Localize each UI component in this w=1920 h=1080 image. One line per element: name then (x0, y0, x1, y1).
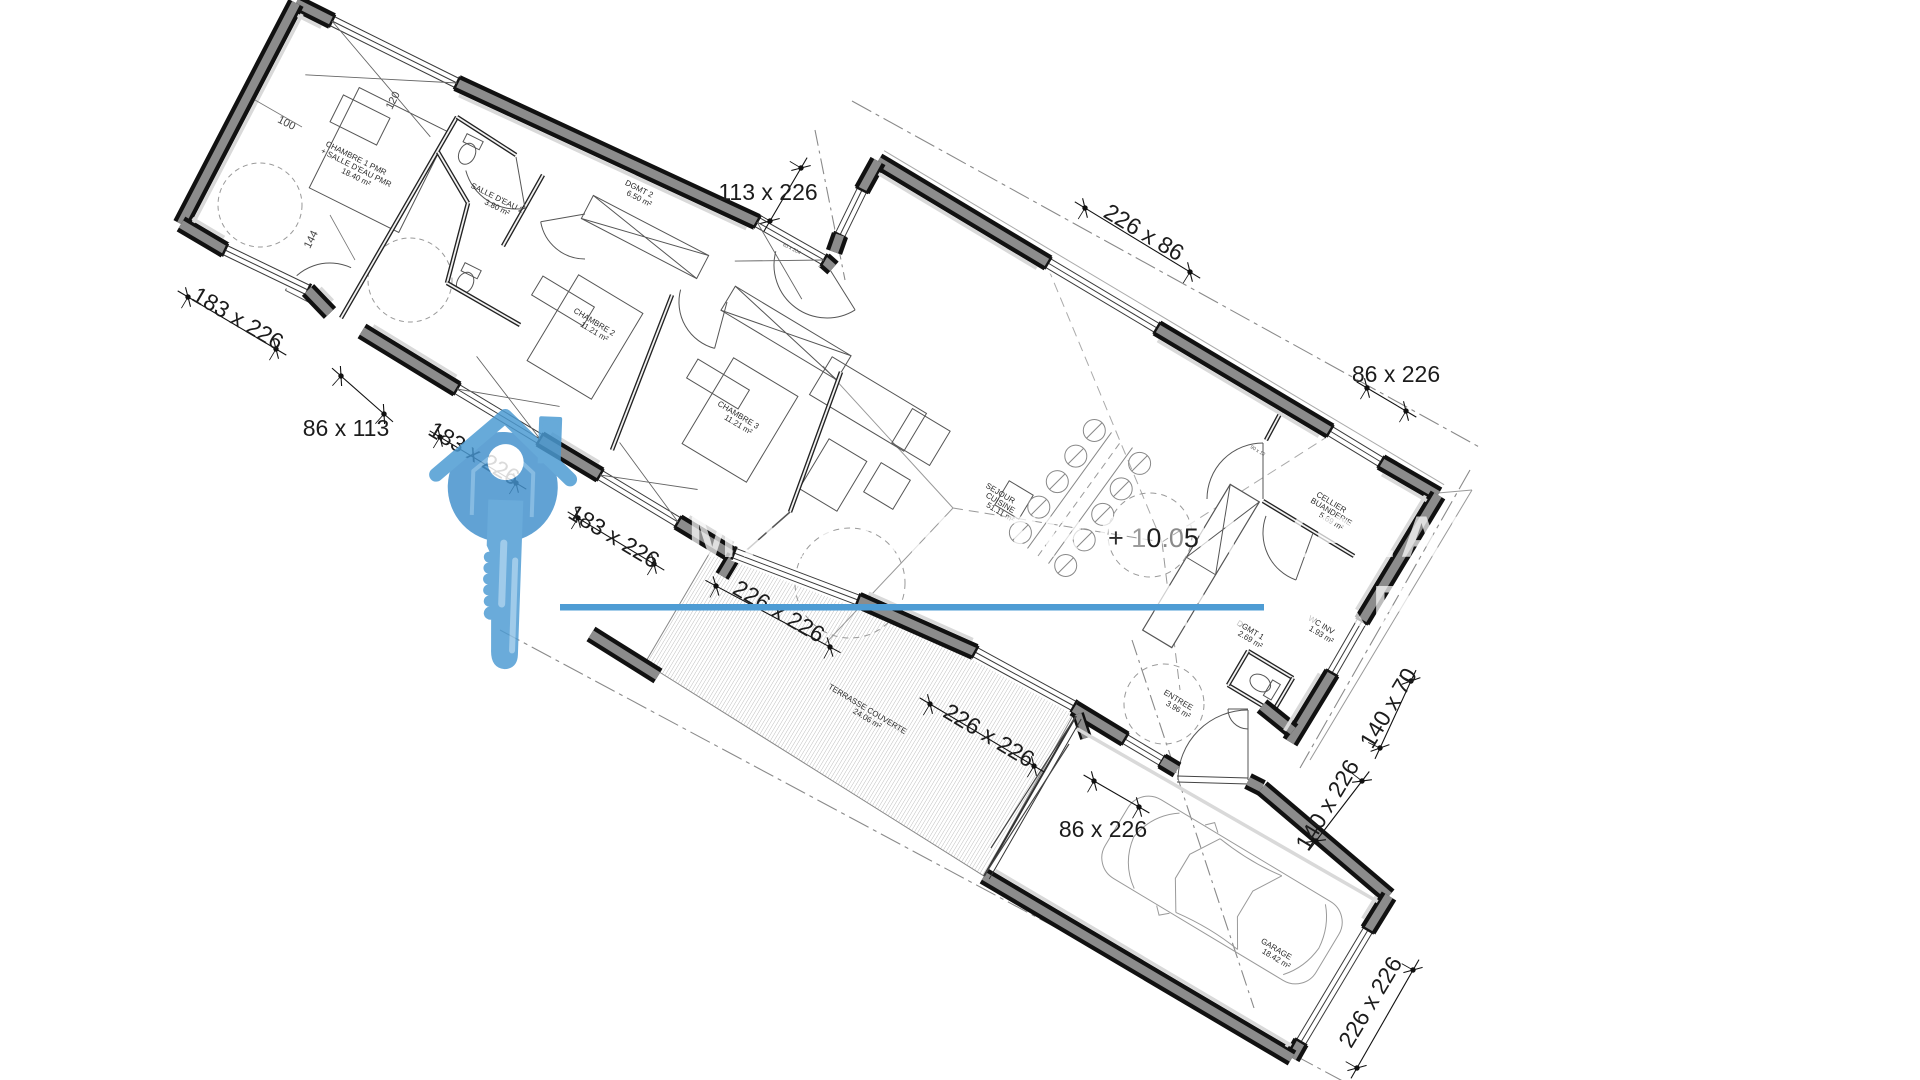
svg-text:113 x 226: 113 x 226 (718, 179, 817, 205)
svg-text:+ 10.05: + 10.05 (1108, 523, 1199, 553)
svg-text:86 x 113: 86 x 113 (303, 415, 390, 441)
svg-text:86 x 226: 86 x 226 (1352, 361, 1440, 387)
svg-text:86 x 226: 86 x 226 (1059, 816, 1147, 842)
